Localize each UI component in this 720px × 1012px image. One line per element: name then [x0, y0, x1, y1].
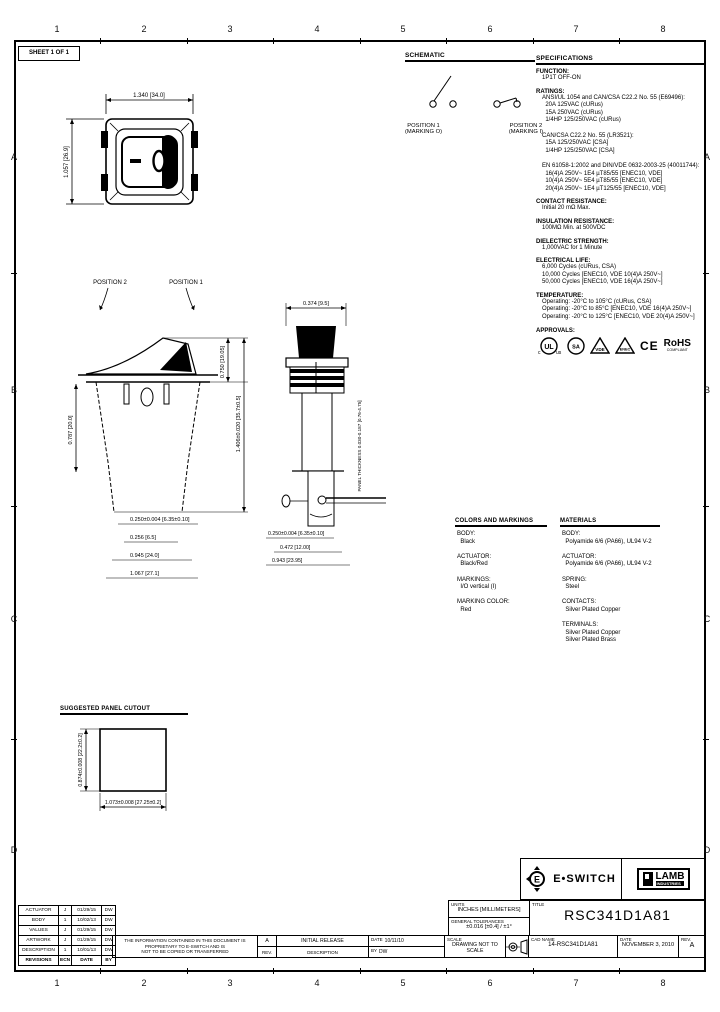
- schematic-position1-marking: (MARKING O): [405, 129, 442, 135]
- svg-text:ENEC: ENEC: [620, 347, 631, 351]
- enec-mark-icon: ENEC: [615, 337, 635, 355]
- zone-col: 8: [653, 24, 673, 34]
- zone-row: D: [4, 845, 24, 855]
- zone-col: 6: [480, 24, 500, 34]
- spec-electrical-life-body: 6,000 Cycles (cURus, CSA) 10,000 Cycles …: [536, 264, 712, 287]
- date-value: NOVEMBER 3, 2010: [618, 942, 678, 948]
- units-value: INCHES [MILLIMETERS]: [449, 907, 529, 913]
- scale-cell: SCALE DRAWING NOT TO SCALE: [444, 935, 506, 958]
- position1-callout: POSITION 1: [169, 280, 203, 286]
- table-row: DESCRIPTION110/01/13DW: [19, 946, 116, 956]
- zone-row: C: [4, 614, 24, 624]
- zone-tick: [187, 38, 188, 44]
- panel-cutout-section: SUGGESTED PANEL CUTOUT 0.874±0.008 [22.2…: [60, 706, 240, 834]
- table-row: VALUESJ01/29/15DW: [19, 926, 116, 936]
- zone-col: 2: [134, 978, 154, 988]
- zone-tick: [533, 38, 534, 44]
- side-dim-bottom-4: 1.067 [27.1]: [130, 571, 160, 577]
- drawn-date-value: 10/11/10: [385, 936, 404, 946]
- zone-tick: [100, 38, 101, 44]
- eswitch-logo: E E•SWITCH: [520, 858, 622, 900]
- rocker-o-marking: [154, 151, 165, 171]
- profile-dim-bottom-2: 0.472 [12.00]: [280, 545, 311, 551]
- side-view: POSITION 2 POSITION 1 0.750 [19.05]: [68, 272, 283, 597]
- projection-cell: [505, 935, 529, 958]
- zone-row: A: [4, 152, 24, 162]
- actuator-knob: [296, 326, 336, 358]
- entry-rev-label: REV.: [257, 946, 277, 958]
- cad-name-value: 14-RSC341D1A81: [529, 942, 617, 948]
- table-header-row: REVISIONSECNDATEBY: [19, 956, 116, 966]
- front-view: 1.340 [34.0] 1.057 [26.9]: [58, 86, 213, 216]
- panel-cutout-title: SUGGESTED PANEL CUTOUT: [60, 706, 188, 715]
- table-row: ARTWORKJ01/29/15DW: [19, 936, 116, 946]
- panel-thickness-note: PANEL THICKNESS 0.030-0.187 [0.76-4.75]: [357, 400, 362, 491]
- vde-mark-icon: VDE: [590, 337, 610, 355]
- sheet-number-label: SHEET 1 OF 1: [18, 46, 80, 61]
- spec-contact-resistance-body: Initial 20 mΩ Max.: [536, 205, 712, 213]
- zone-tick: [446, 968, 447, 974]
- zone-tick: [360, 38, 361, 44]
- zone-tick: [11, 273, 17, 274]
- spec-function-body: 1P1T OFF-ON: [536, 75, 712, 83]
- ul-mark-icon: UL cus: [536, 337, 562, 355]
- mount-tab: [101, 174, 108, 191]
- zone-row: B: [4, 385, 24, 395]
- zone-tick: [619, 38, 620, 44]
- colors-markings-title: COLORS AND MARKINGS: [455, 518, 547, 527]
- rev-value: A: [679, 942, 705, 949]
- zone-tick: [703, 739, 709, 740]
- colors-markings-body: BODY: Black ACTUATOR: Black/Red MARKINGS…: [455, 531, 551, 615]
- materials-section: MATERIALS BODY: Polyamide 6/6 (PA66), UL…: [560, 518, 710, 645]
- materials-title: MATERIALS: [560, 518, 660, 527]
- zone-tick: [273, 968, 274, 974]
- zone-col: 8: [653, 978, 673, 988]
- zone-tick: [619, 968, 620, 974]
- zone-tick: [187, 968, 188, 974]
- zone-col: 4: [307, 24, 327, 34]
- cutout-height-dim: 0.874±0.008 [22.2±0.2]: [78, 733, 84, 787]
- profile-dim-top: 0.374 [9.5]: [303, 301, 329, 307]
- colors-markings-section: COLORS AND MARKINGS BODY: Black ACTUATOR…: [455, 518, 551, 615]
- profile-view: 0.374 [9.5] PANEL THICKNESS 0.030: [264, 296, 394, 571]
- zone-row: B: [697, 385, 717, 395]
- side-dim-bottom-3: 0.945 [24.0]: [130, 553, 160, 559]
- specifications-title: SPECIFICATIONS: [536, 55, 704, 65]
- zone-row: D: [697, 845, 717, 855]
- revision-table: ACTUATORJ01/29/15DW BODY110/02/13DW VALU…: [18, 905, 116, 966]
- zone-col: 1: [47, 978, 67, 988]
- zone-col: 4: [307, 978, 327, 988]
- zone-col: 6: [480, 978, 500, 988]
- zone-tick: [11, 739, 17, 740]
- scale-value: DRAWING NOT TO SCALE: [445, 942, 505, 954]
- zone-tick: [446, 38, 447, 44]
- spec-approvals-head: APPROVALS:: [536, 328, 712, 334]
- title-cell: TITLE RSC341D1A81: [529, 900, 706, 936]
- zone-tick: [533, 968, 534, 974]
- zone-col: 7: [566, 978, 586, 988]
- csa-mark-icon: SA: [567, 337, 585, 355]
- svg-text:us: us: [556, 350, 562, 355]
- cutout-width-dim: 1.073±0.008 [27.25±0.2]: [105, 800, 162, 806]
- ce-mark-icon: CE: [640, 339, 659, 353]
- zone-col: 5: [393, 24, 413, 34]
- zone-col: 1: [47, 24, 67, 34]
- spec-insulation-resistance-body: 100MΩ Min. at 500VDC: [536, 225, 712, 233]
- drawing-sheet: 1 2 3 4 5 6 7 8 1 2 3 4 5 6 7 8 A B C D …: [0, 0, 720, 1012]
- materials-body: BODY: Polyamide 6/6 (PA66), UL94 V-2 ACT…: [560, 531, 710, 645]
- cad-name-cell: CAD NAME 14-RSC341D1A81: [528, 935, 618, 958]
- drawn-by-cell: BY DW: [368, 946, 445, 958]
- drawing-title: RSC341D1A81: [530, 907, 705, 923]
- side-dim-left: 0.787 [20.0]: [68, 415, 74, 445]
- zone-col: 2: [134, 24, 154, 34]
- profile-dim-bottom-3: 0.943 [23.95]: [272, 558, 303, 564]
- front-height-dim: 1.057 [26.9]: [64, 146, 70, 178]
- spec-dielectric-strength-body: 1,000VAC for 1 Minute: [536, 245, 712, 253]
- zone-tick: [273, 38, 274, 44]
- zone-col: 3: [220, 24, 240, 34]
- position2-callout: POSITION 2: [93, 280, 127, 286]
- tolerances-cell: GENERAL TOLERANCES ±0.016 [±0.4] / ±1°: [448, 917, 530, 936]
- svg-text:VDE: VDE: [595, 347, 604, 352]
- mount-tab: [191, 131, 198, 148]
- rocker-dash-marking: [130, 159, 141, 163]
- zone-tick: [11, 506, 17, 507]
- rohs-mark-icon: RoHS COMPLIANT: [664, 339, 691, 352]
- date-cell: DATE NOVEMBER 3, 2010: [617, 935, 679, 958]
- units-cell: UNITS INCHES [MILLIMETERS]: [448, 900, 530, 918]
- tolerances-value: ±0.016 [±0.4] / ±1°: [449, 924, 529, 930]
- proprietary-disclaimer: THE INFORMATION CONTAINED IN THIS DOCUME…: [112, 935, 258, 958]
- drawn-by-value: DW: [379, 947, 387, 957]
- profile-dim-bottom-1: 0.250±0.004 [6.35±0.10]: [268, 531, 325, 537]
- table-row: ACTUATORJ01/29/15DW: [19, 906, 116, 916]
- spec-temperature-body: Operating: -20°C to 105°C (cURus, CSA) O…: [536, 299, 712, 322]
- specifications-section: SPECIFICATIONS FUNCTION: 1P1T OFF-ON RAT…: [536, 55, 712, 361]
- zone-col: 7: [566, 24, 586, 34]
- side-dim-rocker-height: 0.750 [19.05]: [220, 345, 226, 378]
- zone-tick: [100, 968, 101, 974]
- side-dim-overall-height: 1.406±0.020 [35.7±0.5]: [236, 395, 242, 452]
- spec-ratings-body: ANSI/UL 1054 and CAN/CSA C22.2 No. 55 (E…: [536, 95, 712, 194]
- entry-description-label: DESCRIPTION: [276, 946, 369, 958]
- zone-tick: [703, 506, 709, 507]
- schematic-title: SCHEMATIC: [405, 52, 535, 62]
- mount-tab: [101, 131, 108, 148]
- svg-text:c: c: [538, 350, 541, 355]
- zone-col: 3: [220, 978, 240, 988]
- third-angle-projection-icon: [506, 936, 528, 957]
- table-row: BODY110/02/13DW: [19, 916, 116, 926]
- side-dim-bottom-1: 0.250±0.004 [6.35±0.10]: [130, 517, 190, 523]
- zone-tick: [360, 968, 361, 974]
- front-width-dim: 1.340 [34.0]: [133, 93, 165, 99]
- side-dim-bottom-2: 0.256 [6.5]: [130, 535, 156, 541]
- schematic-symbols: [405, 66, 543, 118]
- lamb-logo: LAMB INDUSTRIES: [621, 858, 706, 900]
- svg-text:UL: UL: [544, 344, 554, 351]
- svg-text:SA: SA: [572, 344, 580, 350]
- lamb-logo-icon: [643, 872, 653, 886]
- svg-text:E: E: [534, 875, 540, 885]
- mount-tab: [191, 174, 198, 191]
- rev-cell: REV. A: [678, 935, 706, 958]
- zone-col: 5: [393, 978, 413, 988]
- schematic-section: SCHEMATIC POSITION 1 (MARKING O) POSITIO…: [405, 52, 543, 135]
- eswitch-logo-icon: E: [526, 866, 548, 892]
